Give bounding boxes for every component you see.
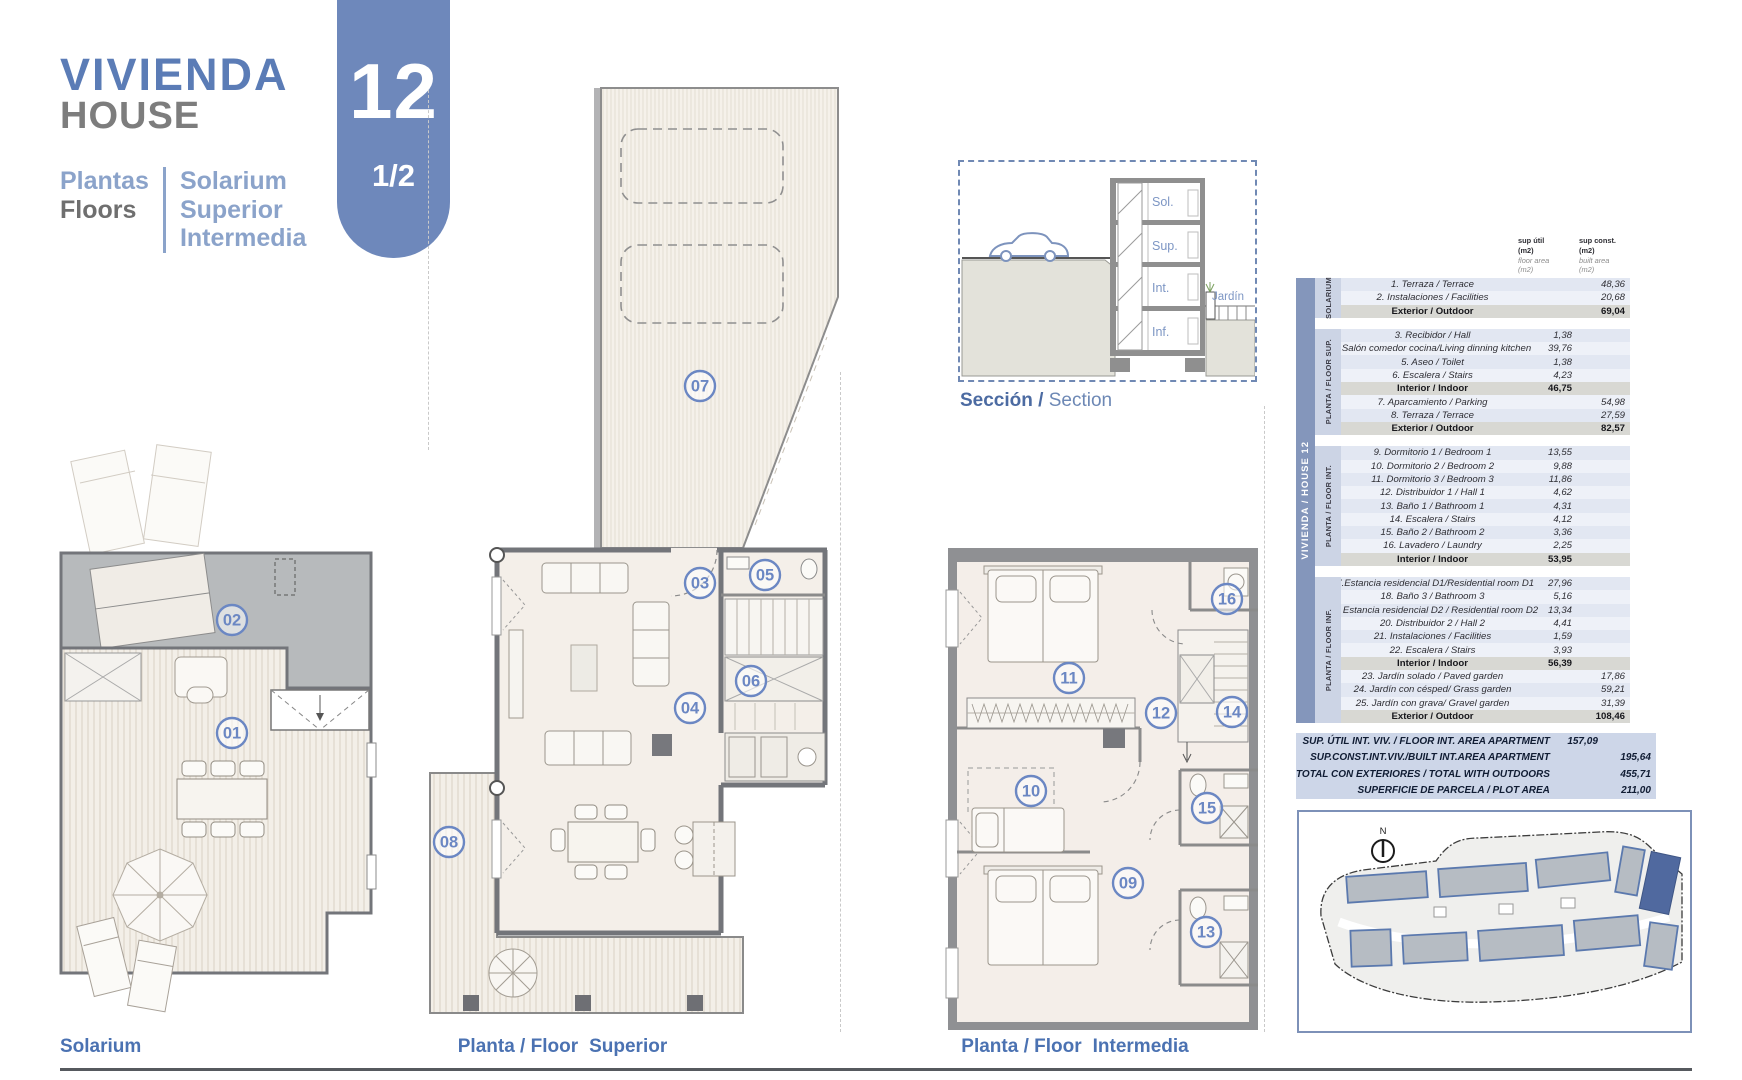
site-plan-box: N (1297, 810, 1692, 1033)
table-row: Interior / Indoor 56,39 (1341, 657, 1630, 670)
table-row: 4 Salón comedor cocina/Living dinning ki… (1341, 342, 1630, 355)
table-row: 6. Escalera / Stairs 4,23 (1341, 369, 1630, 382)
wardrobe (967, 698, 1135, 728)
table-row: 14. Escalera / Stairs 4,12 (1341, 513, 1630, 526)
table-section-solarium: SOLARIUM 1. Terraza / Terrace 48,36 2. I… (1315, 278, 1630, 318)
house-band: VIVIENDA / HOUSE 12 (1296, 278, 1315, 723)
floor-name-solarium: Solarium (180, 167, 306, 196)
table-row: 24. Jardín con césped/ Grass garden 59,2… (1341, 683, 1630, 696)
svg-text:N: N (1380, 826, 1387, 837)
svg-text:Int.: Int. (1152, 281, 1169, 295)
section-rows: 9. Dormitorio 1 / Bedroom 1 13,55 10. Do… (1341, 446, 1630, 566)
section-caption-es: Sección / (960, 390, 1043, 411)
svg-text:03: 03 (691, 575, 709, 593)
table-row: 3. Recibidor / Hall 1,38 (1341, 329, 1630, 342)
section-rows: 1. Terraza / Terrace 48,36 2. Instalacio… (1341, 278, 1630, 318)
table-row: Interior / Indoor 46,75 (1341, 382, 1630, 395)
intermedia-floor-plan: 09 10 11 12 13 14 15 16 (940, 480, 1260, 1036)
table-row: Exterior / Outdoor 108,46 (1341, 710, 1630, 723)
bed-double (984, 866, 1102, 965)
svg-text:13: 13 (1197, 924, 1215, 942)
marker-16: 16 (1212, 584, 1242, 614)
parasol (113, 849, 207, 941)
table-row: 12. Distribuidor 1 / Hall 1 4,62 (1341, 486, 1630, 499)
page-title: VIVIENDA (60, 52, 330, 97)
section-caption-en: Section (1049, 390, 1112, 411)
table-row: 10. Dormitorio 2 / Bedroom 2 9,88 (1341, 460, 1630, 473)
table-row: Exterior / Outdoor 82,57 (1341, 422, 1630, 435)
areas-table-header: sup útil (m2) floor area (m2) sup const.… (1296, 236, 1630, 278)
table-row: 25. Jardín con grava/ Gravel garden 31,3… (1341, 697, 1630, 710)
dining-table (177, 761, 267, 837)
svg-text:06: 06 (742, 673, 760, 691)
label-solarium: Solarium (60, 1036, 141, 1058)
marker-01: 01 (217, 718, 247, 748)
marker-09: 09 (1113, 868, 1143, 898)
bed-double (984, 566, 1102, 662)
svg-text:09: 09 (1119, 875, 1137, 893)
table-row: 11. Dormitorio 3 / Bedroom 3 11,86 (1341, 473, 1630, 486)
table-section-floor-inf: PLANTA / FLOOR INF. 17.Estancia residenc… (1315, 577, 1630, 723)
svg-text:Sup.: Sup. (1152, 239, 1178, 253)
deck-round-table (489, 949, 537, 997)
marker-06: 06 (736, 666, 766, 696)
page-subtitle: HOUSE (60, 97, 330, 137)
kitchen-counter (725, 733, 825, 781)
layout-guide-line (840, 372, 841, 1032)
table-row: 5. Aseo / Toilet 1,38 (1341, 355, 1630, 368)
parking-area (601, 88, 838, 548)
marker-07: 07 (685, 371, 715, 401)
bottom-rule (60, 1068, 1692, 1071)
marker-14: 14 (1217, 697, 1247, 727)
summary-row: SUPERFICIE DE PARCELA / PLOT AREA 211,00 (1296, 783, 1656, 800)
summary-row: SUP. ÚTIL INT. VIV. / FLOOR INT. AREA AP… (1296, 733, 1656, 750)
table-row: 19. Estancia residencial D2 / Residentia… (1341, 604, 1630, 617)
table-row: 16. Lavadero / Laundry 2,25 (1341, 539, 1630, 552)
table-row: 2. Instalaciones / Facilities 20,68 (1341, 291, 1630, 304)
north-arrow-icon: N (1372, 826, 1394, 862)
stair-arrival-hatch (271, 690, 369, 730)
marker-03: 03 (685, 568, 715, 598)
table-row: Exterior / Outdoor 69,04 (1341, 305, 1630, 318)
areas-summary: SUP. ÚTIL INT. VIV. / FLOOR INT. AREA AP… (1296, 733, 1630, 799)
col-header-floor-area: sup útil (m2) floor area (m2) (1518, 236, 1572, 275)
svg-text:07: 07 (691, 378, 709, 396)
section-side-label: PLANTA / FLOOR INT. (1315, 446, 1341, 566)
areas-table: sup útil (m2) floor area (m2) sup const.… (1296, 236, 1630, 799)
section-side-label: PLANTA / FLOOR INF. (1315, 577, 1341, 723)
marker-12: 12 (1146, 698, 1176, 728)
marker-11: 11 (1054, 663, 1084, 693)
marker-15: 15 (1192, 793, 1222, 823)
svg-text:Inf.: Inf. (1152, 325, 1169, 339)
svg-text:10: 10 (1022, 783, 1040, 801)
table-section-floor-sup: PLANTA / FLOOR SUP. 3. Recibidor / Hall … (1315, 329, 1630, 435)
table-row: 17.Estancia residencial D1/Residential r… (1341, 577, 1630, 590)
label-intermedia: Planta / Floor Intermedia (950, 1036, 1200, 1058)
ground (962, 260, 1115, 376)
marker-02: 02 (217, 605, 247, 635)
table-row: 20. Distribuidor 2 / Hall 2 4,41 (1341, 617, 1630, 630)
svg-text:Sol.: Sol. (1152, 195, 1174, 209)
table-row: 21. Instalaciones / Facilities 1,59 (1341, 630, 1630, 643)
table-row: 9. Dormitorio 1 / Bedroom 1 13,55 (1341, 446, 1630, 459)
marker-08: 08 (434, 827, 464, 857)
section-drawing: Sol. Sup. Int. Inf. Jardín (960, 162, 1255, 380)
summary-row: TOTAL CON EXTERIORES / TOTAL WITH OUTDOO… (1296, 766, 1656, 783)
table-row: Interior / Indoor 53,95 (1341, 553, 1630, 566)
marker-05: 05 (750, 560, 780, 590)
svg-text:01: 01 (223, 725, 241, 743)
section-rows: 17.Estancia residencial D1/Residential r… (1341, 577, 1630, 723)
svg-text:04: 04 (681, 700, 700, 718)
section-rows: 3. Recibidor / Hall 1,38 4 Salón comedor… (1341, 329, 1630, 435)
table-row: 8. Terraza / Terrace 27,59 (1341, 409, 1630, 422)
table-row: 23. Jardín solado / Paved garden 17,86 (1341, 670, 1630, 683)
floors-label-en: Floors (60, 196, 149, 225)
garden-label: Jardín (1212, 291, 1244, 303)
outdoor-kitchen (175, 657, 227, 703)
table-row: 15. Baño 2 / Bathroom 2 3,36 (1341, 526, 1630, 539)
stair-shaft (1118, 183, 1142, 350)
marker-04: 04 (675, 693, 705, 723)
layout-guide-line (1264, 406, 1265, 1032)
table-row: 18. Baño 3 / Bathroom 3 5,16 (1341, 590, 1630, 603)
summary-row: SUP.CONST.INT.VIV./BUILT INT.AREA APARTM… (1296, 750, 1656, 767)
floor-name-intermedia: Intermedia (180, 224, 306, 253)
section-side-label: PLANTA / FLOOR SUP. (1315, 329, 1341, 435)
marker-13: 13 (1191, 917, 1221, 947)
skylight-hatch (65, 653, 141, 701)
table-section-floor-int: PLANTA / FLOOR INT. 9. Dormitorio 1 / Be… (1315, 446, 1630, 566)
wall-block (1103, 726, 1125, 748)
car-icon (990, 233, 1068, 261)
col-header-built-area: sup const. (m2) built area (m2) (1579, 236, 1633, 275)
table-row: 1. Terraza / Terrace 48,36 (1341, 278, 1630, 291)
table-row: 13. Baño 1 / Bathroom 1 4,31 (1341, 499, 1630, 512)
superior-floor-plan: 03 04 05 06 07 08 (425, 85, 840, 1017)
marker-10: 10 (1016, 776, 1046, 806)
section-side-label: SOLARIUM (1315, 278, 1341, 318)
svg-text:11: 11 (1060, 670, 1077, 688)
tv-bench (509, 630, 523, 718)
stairs (1178, 630, 1248, 762)
svg-text:16: 16 (1218, 591, 1236, 609)
fireplace (652, 734, 672, 756)
label-superior: Planta / Floor Superior (455, 1036, 670, 1058)
summary-rows: SUP. ÚTIL INT. VIV. / FLOOR INT. AREA AP… (1296, 733, 1656, 799)
floor-name-superior: Superior (180, 196, 306, 225)
title-block: VIVIENDA HOUSE Plantas Floors Solarium S… (60, 52, 330, 253)
svg-text:12: 12 (1152, 705, 1170, 723)
table-row: 22. Escalera / Stairs 3,93 (1341, 643, 1630, 656)
table-row: 7. Aparcamiento / Parking 54,98 (1341, 395, 1630, 408)
rooftop-loungers-outline (71, 445, 211, 555)
site-plan-drawing: N (1299, 812, 1690, 1031)
svg-text:14: 14 (1223, 704, 1242, 722)
svg-text:05: 05 (756, 567, 774, 585)
svg-text:08: 08 (440, 834, 458, 852)
floors-legend: Plantas Floors Solarium Superior Interme… (60, 167, 330, 253)
section-view-box: Sol. Sup. Int. Inf. Jardín (958, 160, 1257, 382)
svg-text:15: 15 (1198, 800, 1216, 818)
svg-text:02: 02 (223, 612, 241, 630)
section-caption: Sección / Section (960, 390, 1112, 412)
floors-label-es: Plantas (60, 167, 149, 196)
solarium-floor-plan: 01 02 (55, 443, 380, 1015)
areas-table-body: VIVIENDA / HOUSE 12 SOLARIUM 1. Terraza … (1296, 278, 1630, 723)
coffee-table (571, 645, 597, 691)
